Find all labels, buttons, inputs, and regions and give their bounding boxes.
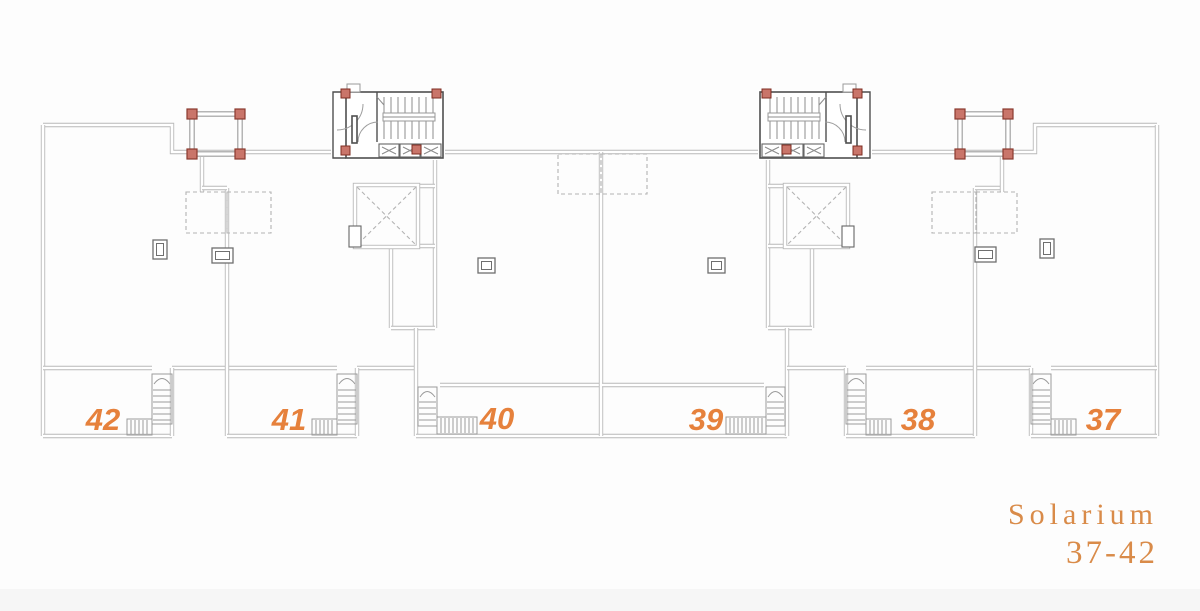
unit-label-37[interactable]: 37 <box>1086 402 1122 437</box>
unit-label-42[interactable]: 42 <box>85 402 120 437</box>
terrace-stair-39 <box>726 387 785 434</box>
unit-label-41[interactable]: 41 <box>271 402 306 437</box>
equipment-boxes <box>379 144 441 157</box>
unit-labels: 42 41 40 39 38 37 <box>85 401 1122 437</box>
pergola-right <box>955 109 1013 159</box>
terrace-stair-40 <box>418 387 477 434</box>
vent <box>975 247 996 262</box>
terrace-stair-37 <box>1031 374 1076 435</box>
vent <box>153 240 167 259</box>
plan-title-line1: Solarium <box>1008 498 1158 531</box>
equipment-boxes <box>762 144 824 157</box>
plan-title-line2: 37-42 <box>1066 535 1158 571</box>
vent <box>708 258 725 273</box>
vent <box>212 248 233 263</box>
terrace-stair-38 <box>846 374 891 435</box>
pergola-left <box>187 109 245 159</box>
skylight-shaft-left <box>349 185 418 247</box>
stair-core-left <box>331 84 445 160</box>
unit-label-38[interactable]: 38 <box>901 402 936 437</box>
floor-plan-drawing: 42 41 40 39 38 37 Solarium 37-42 <box>0 0 1200 611</box>
vent <box>478 258 495 273</box>
vent <box>1040 239 1054 258</box>
page-bottom-strip <box>0 589 1200 611</box>
unit-label-40[interactable]: 40 <box>479 401 514 436</box>
floor-plan-page: 42 41 40 39 38 37 Solarium 37-42 <box>0 0 1200 611</box>
plan-title: Solarium 37-42 <box>1008 498 1158 571</box>
roof-vents <box>153 239 1054 273</box>
roof-outline <box>43 125 1157 436</box>
unit-label-39[interactable]: 39 <box>689 402 724 437</box>
stair-core-right <box>758 84 872 160</box>
skylight-shaft-right <box>785 185 854 247</box>
terrace-stair-41 <box>312 374 357 435</box>
terrace-stair-42 <box>127 374 172 435</box>
